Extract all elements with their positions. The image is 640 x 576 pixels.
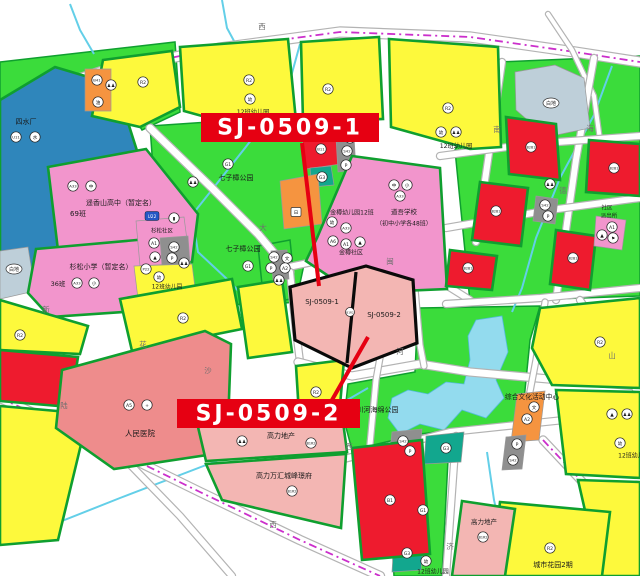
tag-r2-label: R2 [547, 546, 553, 552]
tag-baidi-label: 白地 [546, 100, 556, 107]
tag-you-label: 油 [96, 99, 101, 106]
gaoli-name: 高力地产 [471, 517, 498, 526]
tag-zhong-label: 中 [89, 183, 94, 190]
tag-r2-label: R2 [180, 316, 186, 322]
daowu-name: 道吾学校 [391, 207, 418, 216]
tag-xiao-label: 小 [405, 182, 410, 189]
tag-a6-label: A6 [330, 239, 336, 245]
tag-g1-label: G1 [245, 264, 252, 270]
tag-r2-label: R2 [597, 340, 603, 346]
tag-b2b1-label: B2B1 [527, 145, 536, 149]
tag-p-label: P [345, 163, 348, 169]
kindergarten-note: 12班幼儿园 [440, 142, 473, 150]
tag-a2-label: A2 [282, 266, 288, 272]
tag-b1-label: B1 [387, 498, 393, 504]
road-name-char: 济 [446, 541, 454, 551]
tag-zhong-label: 中 [392, 182, 397, 189]
kindergarten-note: 12班幼儿园 [152, 283, 183, 291]
tag-u22-label: U22 [148, 214, 157, 220]
tag-a33-label: A33 [342, 225, 350, 230]
square-icon-label: ⊟ [294, 210, 298, 216]
tag-p22-label: P22 [142, 266, 150, 271]
tag-b1r2-sj-label: B1R2 [346, 310, 354, 314]
road-name-char: 大 [259, 222, 267, 232]
road-name-char: 西 [258, 22, 266, 31]
tag-you-kind-label: 幼 [248, 96, 253, 103]
tag-p-label: P [409, 449, 412, 455]
jinzun-kindergarten: 金樽幼儿园12班 [330, 209, 374, 217]
park-name: 七子樟公园 [219, 173, 254, 182]
wc-icon-label: ♟♟ [546, 182, 554, 188]
r2-se-2 [556, 390, 640, 478]
tag-you-kind-label: 幼 [330, 219, 335, 226]
kindergarten-note: 12班幼儿园 [618, 452, 640, 460]
road-name-char: 德 [559, 185, 567, 195]
tag-you-kind-label: 幼 [618, 440, 623, 447]
tag-p-label: P [516, 442, 519, 448]
tag-p-label: P [547, 214, 550, 220]
tag-s42-label: S42 [343, 148, 351, 153]
community-label: 社区 [601, 204, 613, 212]
road-name-char: 南 [493, 124, 501, 134]
tag-a33-label: A33 [69, 183, 77, 188]
community-name: 杉松社区 [151, 227, 174, 235]
road-name-char: 沙 [204, 366, 212, 375]
jinzun-community: 金樽社区 [339, 249, 363, 257]
tag-b2b1-label: B2B1 [569, 256, 578, 260]
wc-icon-label: ♟♟ [238, 439, 246, 445]
tag-wen-label: 文 [285, 255, 290, 262]
kindergarten-note: 12班幼儿园 [417, 568, 449, 576]
culture-center-name: 综合文化活动中心 [505, 392, 560, 401]
tag-xiao-label: 小 [92, 280, 97, 287]
orange-park-block [280, 174, 322, 229]
triangle-icon-label: ▲ [600, 234, 604, 239]
water-plant-name: 四水厂 [16, 117, 37, 126]
tag-a33-label: A33 [73, 280, 81, 285]
tag-r2-label: R2 [246, 78, 252, 84]
zoning-map-viewport: U11水R2R2R2R2R2R2R2R2R2B41油♟♟♟♟♟♟♟♟♟♟♟♟♟♟… [0, 0, 640, 576]
wc-icon-label: ♟♟ [107, 83, 115, 89]
sj2-parcel-label: SJ-0509-2 [367, 311, 401, 319]
callout-label-sj2: SJ-0509-2 [196, 402, 342, 427]
tag-b2b1-label: B2B1 [610, 166, 619, 170]
road-name-char: 新 [42, 304, 50, 314]
hospital-cross-icon-label: + [145, 403, 149, 409]
tag-s42-label: S42 [509, 457, 517, 462]
tag-b11-label: B11 [317, 146, 325, 151]
tag-a5-label: A5 [126, 403, 132, 409]
road-name-char: 花 [139, 339, 147, 349]
gaozhong-classes: 69班 [70, 209, 86, 218]
park-name: 七子樟公园 [226, 244, 261, 253]
tag-you-kind-label: 幼 [157, 274, 162, 281]
hospital-name: 人民医院 [125, 428, 155, 438]
gaozhong-name: 遥香山高中（暂定名） [86, 198, 156, 207]
callout-label-sj1: SJ-0509-1 [217, 116, 363, 141]
r2-se-1 [532, 298, 640, 388]
gaoli-name: 高力地产 [267, 431, 295, 440]
tag-a1-label: A1 [343, 242, 349, 248]
r2-block-6 [238, 280, 292, 358]
primary-name: 杉松小学（暂定名） [70, 262, 133, 271]
triangle-icon-label: ▲ [610, 413, 614, 418]
gaoli-wanhui-name: 高力万汇城峰璟府 [256, 471, 312, 480]
tag-a33-label: A33 [396, 193, 404, 198]
tag-r2-label: R2 [325, 87, 331, 93]
tag-g1-label: G1 [225, 162, 232, 168]
wc-icon-label: ♟♟ [452, 130, 460, 136]
wc-icon-label: ♟♟ [275, 278, 283, 284]
r2-block-3 [301, 37, 383, 121]
tag-s42-label: S42 [270, 254, 278, 259]
zoning-map: U11水R2R2R2R2R2R2R2R2R2B41油♟♟♟♟♟♟♟♟♟♟♟♟♟♟… [0, 0, 640, 576]
tag-b1r2-label: B1R2 [288, 489, 297, 493]
city-garden-name: 城市花园2期 [533, 560, 572, 569]
triangle-icon-label: ▲ [358, 241, 362, 246]
tag-a1-label: A1 [609, 225, 615, 231]
road-name-char: 西 [269, 520, 277, 529]
tag-r2-label: R2 [140, 80, 146, 86]
wc-icon-label: ♟♟ [189, 180, 197, 186]
tag-b1r2-label: B1R2 [307, 441, 316, 445]
tag-shui-label: 水 [33, 134, 38, 141]
tag-b1r2-label: B1R2 [479, 535, 488, 539]
tag-b2b1-label: B2B1 [492, 209, 501, 213]
tag-r2-label: R2 [313, 390, 319, 396]
daowu-classes: （初中小学各48班） [376, 220, 432, 228]
road-name-char: 闽 [386, 257, 394, 266]
triangle-icon-label: ▲ [153, 256, 157, 261]
tag-you-kind-label: 幼 [424, 558, 429, 565]
tag-g3-label: G3 [319, 175, 326, 181]
tag-a2-label: A2 [524, 417, 530, 423]
tag-p-label: P [171, 256, 174, 262]
tag-a1-label: A1 [151, 241, 157, 247]
tag-you-kind-label: 幼 [439, 129, 444, 136]
tag-r2-label: R2 [17, 333, 23, 339]
tag-s42-label: S42 [541, 202, 549, 207]
road-name-char: 西 [345, 442, 353, 451]
road-name-char: 河 [396, 347, 404, 356]
tag-b2b1-label: B2B1 [464, 266, 473, 270]
tag-g3-label: G3 [404, 551, 411, 557]
tag-b41-label: B41 [93, 77, 101, 82]
tag-r2-label: R2 [445, 106, 451, 112]
tag-s42-label: S42 [170, 244, 178, 249]
pin-icon-label: ⚑ [611, 236, 615, 242]
road-name-char: 山 [608, 350, 616, 360]
tag-baidi-label: 白地 [9, 266, 19, 273]
tag-g1-label: G1 [420, 508, 427, 514]
wc-icon-label: ♟♟ [623, 412, 631, 418]
tag-wen-label: 文 [532, 404, 537, 411]
primary-classes: 36班 [51, 279, 66, 288]
tag-u11-label: U11 [12, 134, 20, 139]
sj1-parcel-label: SJ-0509-1 [305, 298, 339, 306]
wc-icon-label: ♟♟ [180, 261, 188, 267]
tag-s42-label: S42 [399, 438, 407, 443]
police-label: 派出所 [601, 212, 618, 220]
road-name-char: 海 [586, 123, 594, 133]
tag-p-label: P [270, 266, 273, 272]
tag-g3-label: G3 [443, 446, 450, 452]
road-name-char: 陆 [60, 400, 68, 410]
